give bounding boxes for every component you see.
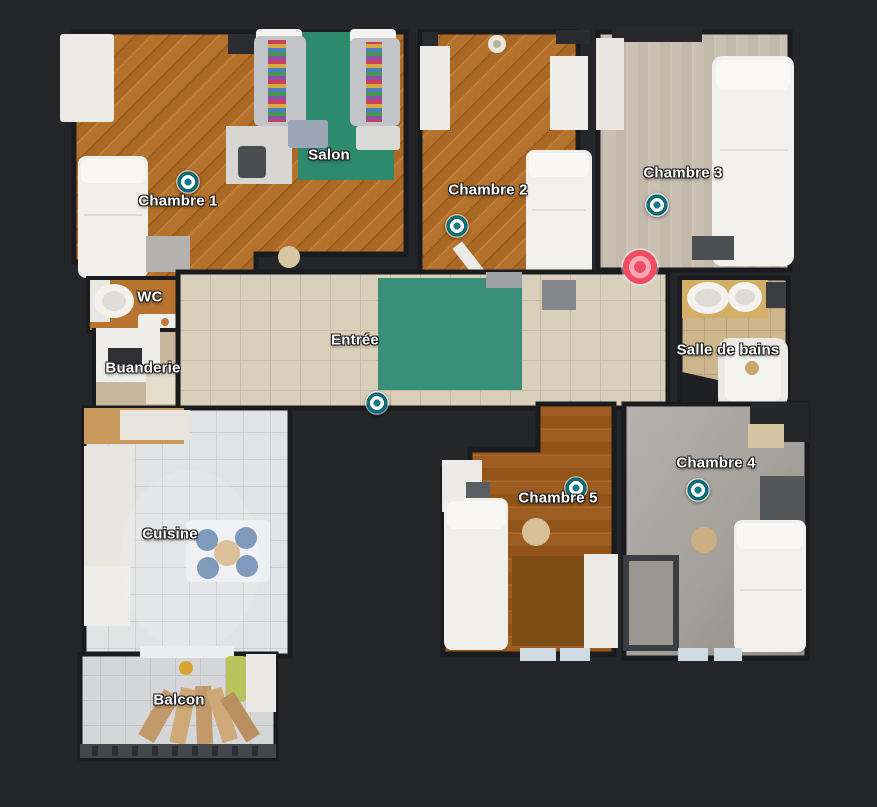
- room-label-chambre-2: Chambre 2: [448, 182, 527, 199]
- floorplan-overlay: Chambre 1SalonChambre 2Chambre 3WCBuande…: [0, 0, 877, 807]
- waypoint-chambre-1[interactable]: [176, 170, 200, 194]
- waypoint-chambre-4[interactable]: [686, 478, 710, 502]
- room-label-balcon: Balcon: [153, 692, 204, 709]
- room-label-chambre-4: Chambre 4: [676, 455, 755, 472]
- floorplan-view: Chambre 1SalonChambre 2Chambre 3WCBuande…: [0, 0, 877, 807]
- waypoint-chambre-3[interactable]: [645, 193, 669, 217]
- room-label-entree: Entrée: [331, 332, 379, 349]
- room-label-cuisine: Cuisine: [142, 526, 198, 543]
- room-label-chambre-3: Chambre 3: [643, 165, 722, 182]
- room-label-chambre-1: Chambre 1: [138, 193, 217, 210]
- current-position-marker: [621, 248, 659, 286]
- waypoint-entree[interactable]: [365, 391, 389, 415]
- room-label-salon: Salon: [308, 147, 350, 164]
- waypoint-chambre-2[interactable]: [445, 214, 469, 238]
- room-label-wc: WC: [137, 289, 162, 306]
- waypoint-chambre-5[interactable]: [564, 476, 588, 500]
- room-label-salle-de-bains: Salle de bains: [677, 342, 780, 359]
- room-label-buanderie: Buanderie: [105, 360, 180, 377]
